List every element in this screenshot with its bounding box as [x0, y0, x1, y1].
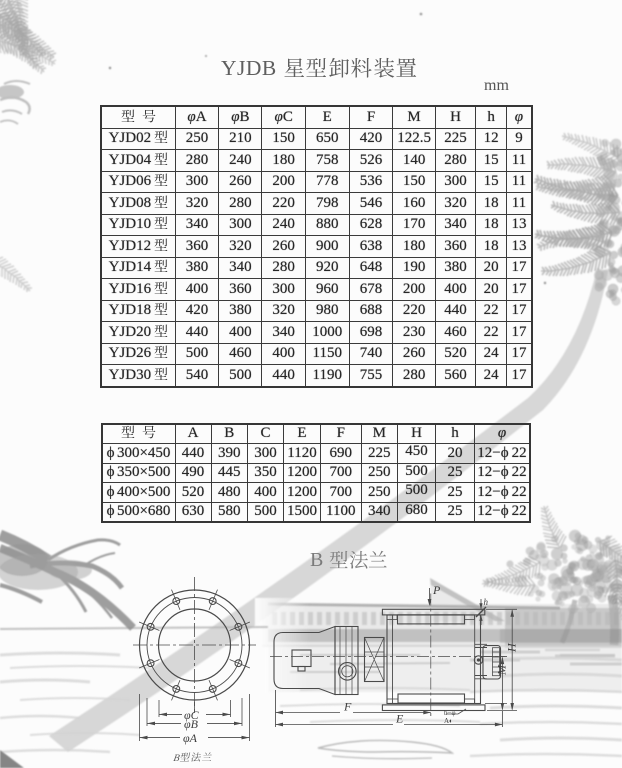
svg-text:A◐: A◐ — [444, 717, 453, 725]
svg-text:P: P — [432, 583, 441, 597]
svg-text:H: H — [505, 642, 519, 653]
svg-text:B: B — [172, 753, 180, 764]
svg-text:φB: φB — [184, 717, 199, 731]
svg-text:M: M — [495, 664, 509, 676]
svg-text:b−φ: b−φ — [444, 709, 456, 717]
svg-text:h: h — [484, 597, 489, 607]
svg-text:F: F — [343, 700, 352, 714]
svg-text:E: E — [395, 712, 404, 726]
svg-text:φA: φA — [183, 731, 198, 745]
